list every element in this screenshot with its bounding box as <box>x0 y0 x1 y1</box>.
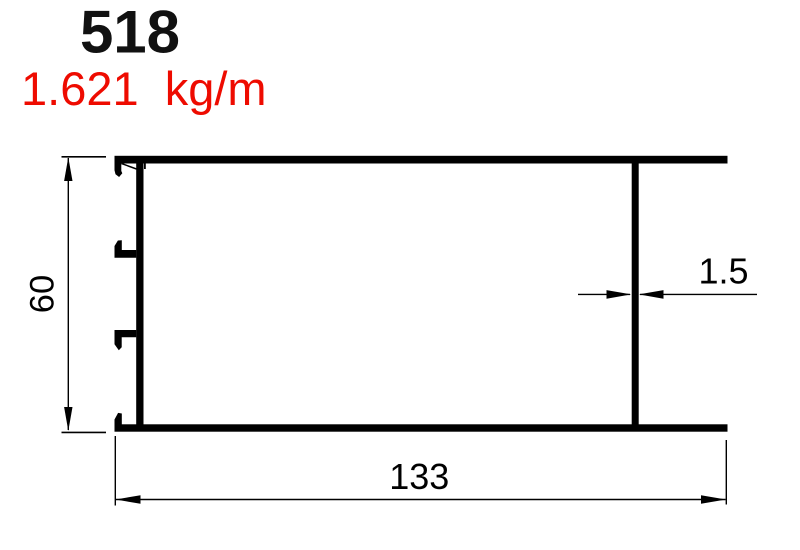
svg-text:1.621 kg/m: 1.621 kg/m <box>21 62 267 115</box>
svg-text:518: 518 <box>80 0 180 65</box>
svg-text:60: 60 <box>23 275 61 313</box>
svg-text:133: 133 <box>389 456 449 497</box>
svg-text:1.5: 1.5 <box>698 250 748 291</box>
